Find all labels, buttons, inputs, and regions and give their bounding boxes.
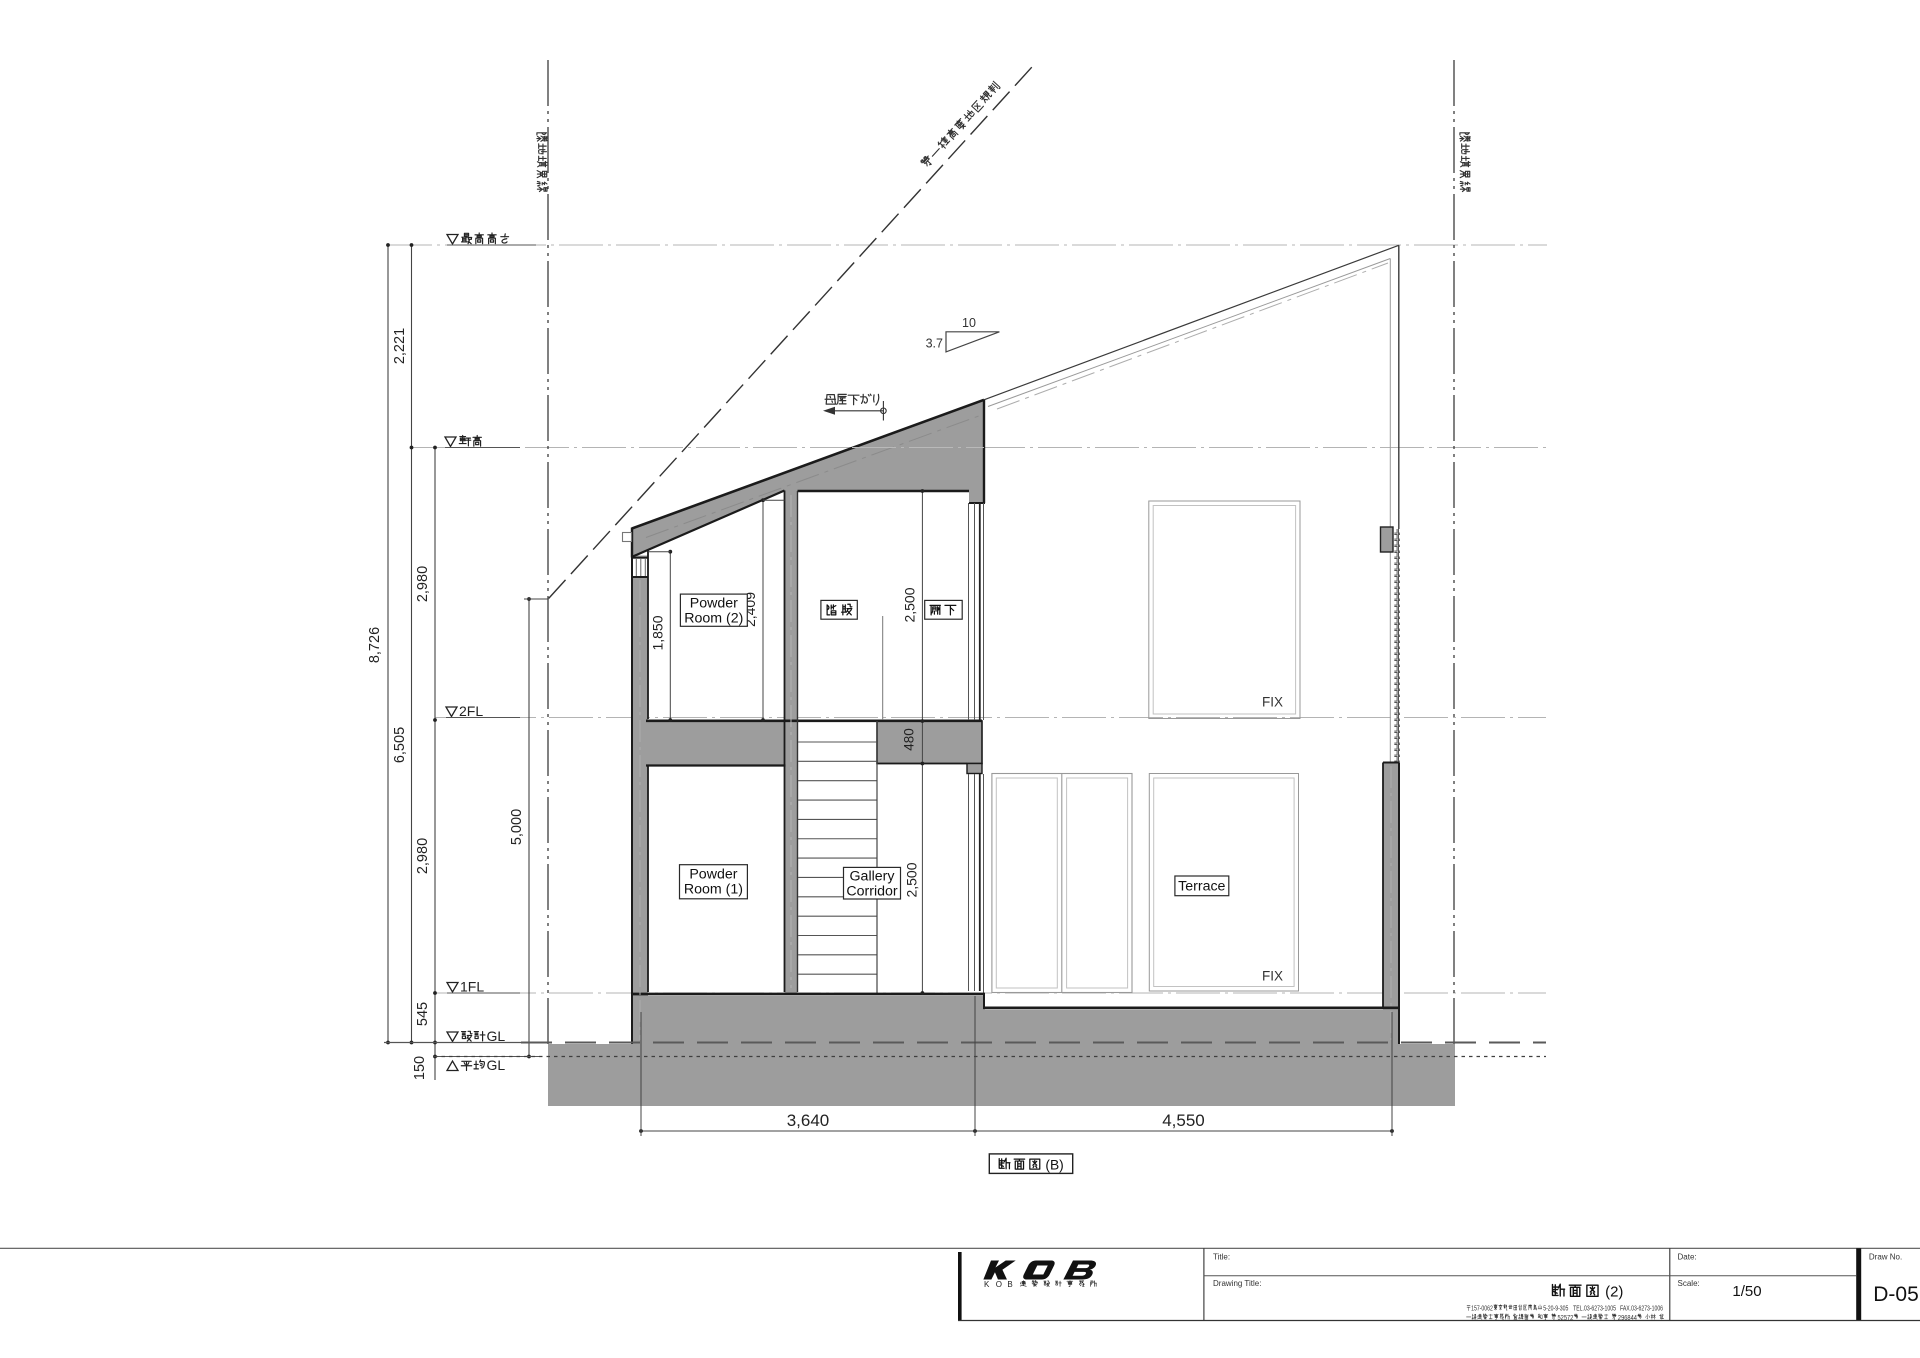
svg-text:Title:: Title: xyxy=(1213,1253,1230,1262)
svg-text:Scale:: Scale: xyxy=(1678,1279,1700,1288)
svg-text:Powder: Powder xyxy=(689,867,737,883)
svg-text:GL: GL xyxy=(486,1057,505,1073)
svg-text:FIX: FIX xyxy=(1262,695,1283,710)
svg-text:D-05: D-05 xyxy=(1873,1283,1919,1306)
svg-text:B: B xyxy=(1007,1280,1012,1289)
svg-text:2,500: 2,500 xyxy=(902,587,918,622)
svg-text:1/50: 1/50 xyxy=(1732,1283,1761,1300)
svg-text:Drawing Title:: Drawing Title: xyxy=(1213,1279,1261,1288)
svg-text:Corridor: Corridor xyxy=(846,883,898,899)
svg-text:K: K xyxy=(984,1280,990,1289)
svg-text:TEL.03-6273-1005: TEL.03-6273-1005 xyxy=(1573,1305,1616,1313)
svg-text:52572: 52572 xyxy=(1557,1314,1573,1322)
svg-text:FIX: FIX xyxy=(1262,969,1283,984)
svg-text:3,640: 3,640 xyxy=(787,1111,830,1130)
svg-text:2,500: 2,500 xyxy=(904,862,920,897)
svg-text:FAX.03-6273-1006: FAX.03-6273-1006 xyxy=(1620,1305,1663,1313)
svg-text:〒157-0062: 〒157-0062 xyxy=(1466,1305,1493,1313)
svg-text:Room (1): Room (1) xyxy=(684,882,743,898)
svg-text:1,850: 1,850 xyxy=(650,615,666,650)
svg-text:296844: 296844 xyxy=(1618,1314,1637,1322)
svg-text:GL: GL xyxy=(486,1028,505,1044)
svg-text:2,980: 2,980 xyxy=(415,566,431,602)
svg-text:2,221: 2,221 xyxy=(392,328,408,364)
svg-text:O: O xyxy=(996,1280,1002,1289)
svg-text:4,550: 4,550 xyxy=(1162,1111,1205,1130)
svg-text:5,000: 5,000 xyxy=(509,809,525,845)
svg-text:6,505: 6,505 xyxy=(392,727,408,763)
svg-text:8,726: 8,726 xyxy=(367,627,383,663)
svg-text:Terrace: Terrace xyxy=(1178,879,1225,895)
svg-text:Date:: Date: xyxy=(1678,1253,1697,1262)
svg-text:480: 480 xyxy=(902,728,917,751)
svg-text:Gallery: Gallery xyxy=(850,868,896,884)
svg-text:1FL: 1FL xyxy=(460,979,484,995)
svg-text:150: 150 xyxy=(412,1056,428,1080)
svg-text:Powder: Powder xyxy=(690,595,738,611)
svg-text:10: 10 xyxy=(962,316,976,330)
svg-text:Draw No.: Draw No. xyxy=(1869,1253,1902,1262)
svg-text:3.7: 3.7 xyxy=(926,337,943,351)
svg-text:2FL: 2FL xyxy=(459,703,483,719)
svg-text:545: 545 xyxy=(415,1002,431,1026)
svg-text:(B): (B) xyxy=(1045,1158,1063,1173)
svg-text:2,980: 2,980 xyxy=(415,838,431,874)
svg-text:Room (2): Room (2) xyxy=(684,610,743,626)
svg-text:(2): (2) xyxy=(1605,1284,1623,1301)
svg-text:5-20-9-305: 5-20-9-305 xyxy=(1543,1305,1569,1313)
